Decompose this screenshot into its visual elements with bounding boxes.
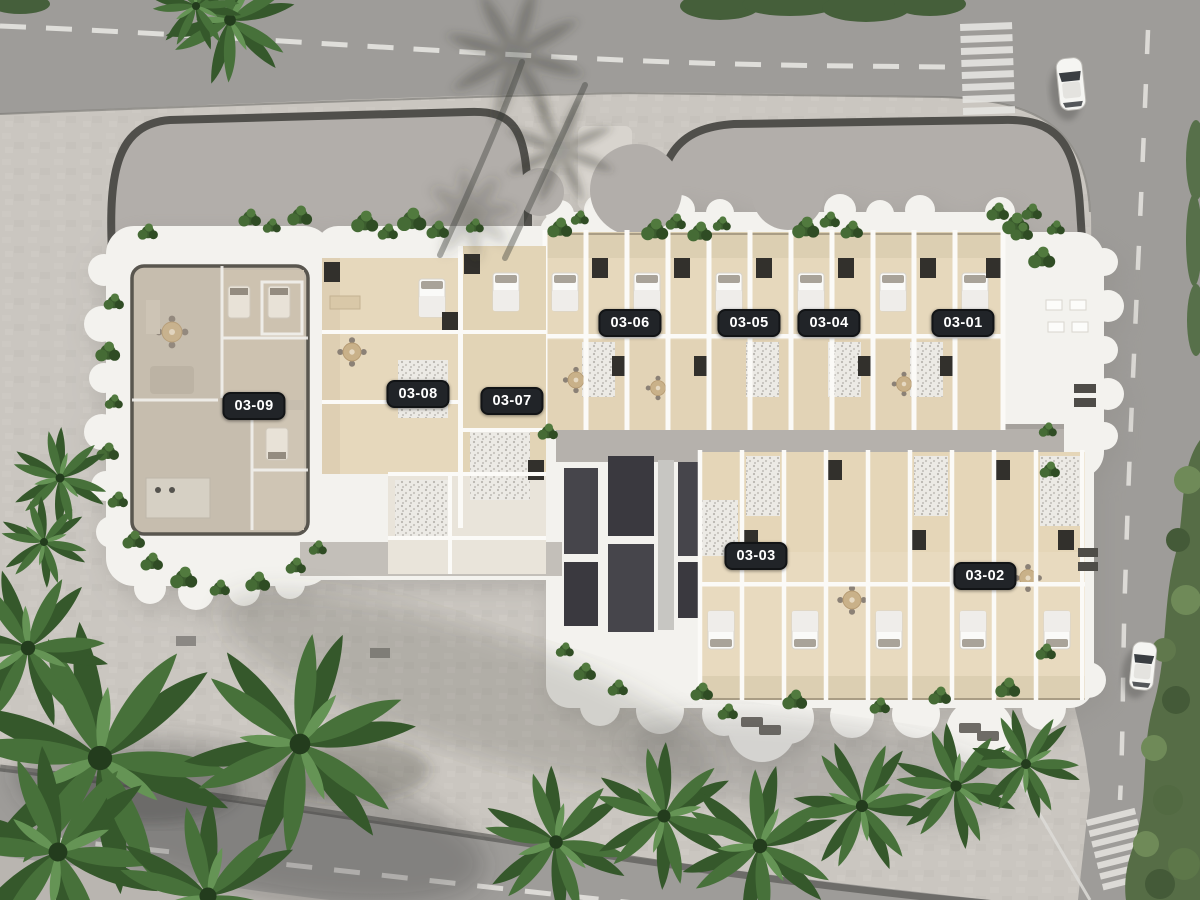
site-plan-render [0, 0, 1200, 900]
unit-label-03-05[interactable]: 03-05 [717, 309, 780, 337]
building-core [564, 456, 712, 632]
site-plan-view: 03-01 03-02 03-03 03-04 03-05 03-06 03-0… [0, 0, 1200, 900]
plaza-bench [176, 636, 196, 646]
unit-label-03-01[interactable]: 03-01 [931, 309, 994, 337]
unit-label-03-07[interactable]: 03-07 [480, 387, 543, 415]
unit-label-03-02[interactable]: 03-02 [953, 562, 1016, 590]
unit-label-03-03[interactable]: 03-03 [724, 542, 787, 570]
unit-label-03-08[interactable]: 03-08 [386, 380, 449, 408]
apartments-bottom-row[interactable] [698, 450, 1085, 700]
unit-label-03-04[interactable]: 03-04 [797, 309, 860, 337]
unit-label-03-09[interactable]: 03-09 [222, 392, 285, 420]
crosswalk-top-right [960, 22, 1016, 127]
unit-label-03-06[interactable]: 03-06 [598, 309, 661, 337]
median-greens-right [1186, 120, 1200, 356]
